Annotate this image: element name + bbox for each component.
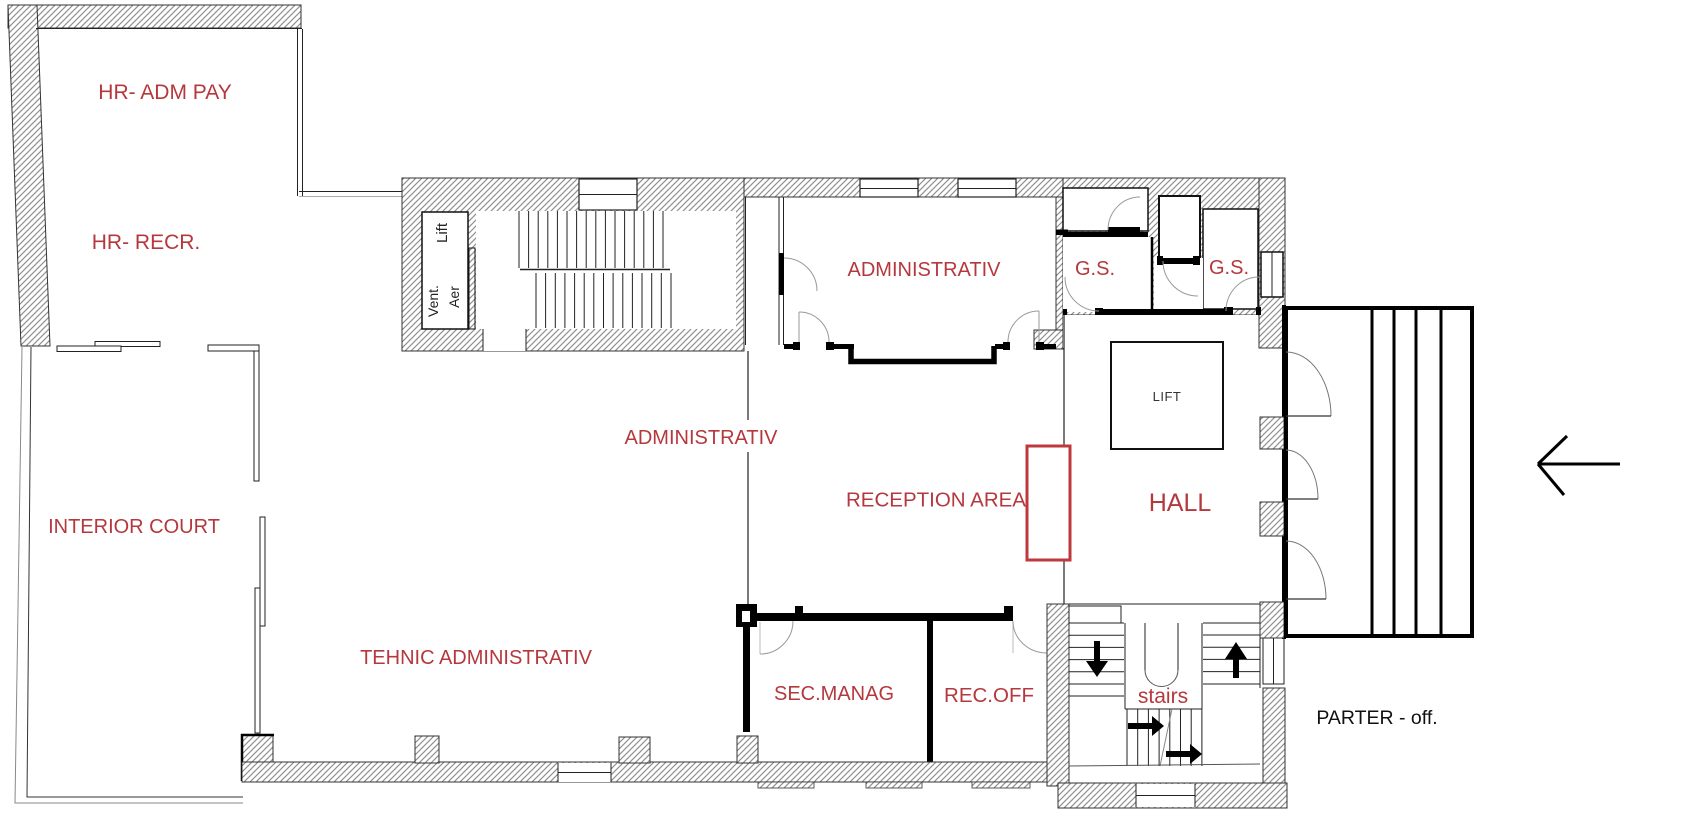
svg-text:ADMINISTRATIV: ADMINISTRATIV — [625, 427, 779, 449]
svg-text:HR- RECR.: HR- RECR. — [92, 231, 201, 254]
svg-text:REC.OFF: REC.OFF — [944, 684, 1034, 707]
svg-text:TEHNIC ADMINISTRATIV: TEHNIC ADMINISTRATIV — [360, 647, 593, 669]
svg-text:Aer: Aer — [446, 286, 462, 308]
svg-text:PARTER - off.: PARTER - off. — [1316, 707, 1437, 729]
svg-text:Lift: Lift — [434, 222, 451, 243]
svg-text:SEC.MANAG: SEC.MANAG — [774, 683, 894, 705]
svg-text:ADMINISTRATIV: ADMINISTRATIV — [848, 259, 1002, 281]
svg-text:stairs: stairs — [1138, 685, 1188, 708]
svg-text:LIFT: LIFT — [1153, 389, 1182, 404]
svg-text:INTERIOR COURT: INTERIOR COURT — [48, 516, 220, 538]
svg-text:RECEPTION AREA: RECEPTION AREA — [846, 489, 1026, 512]
svg-text:G.S.: G.S. — [1075, 258, 1115, 280]
svg-text:G.S.: G.S. — [1209, 257, 1249, 279]
svg-text:Vent.: Vent. — [425, 285, 441, 317]
svg-text:HR- ADM PAY: HR- ADM PAY — [98, 81, 231, 104]
svg-text:HALL: HALL — [1149, 489, 1212, 517]
